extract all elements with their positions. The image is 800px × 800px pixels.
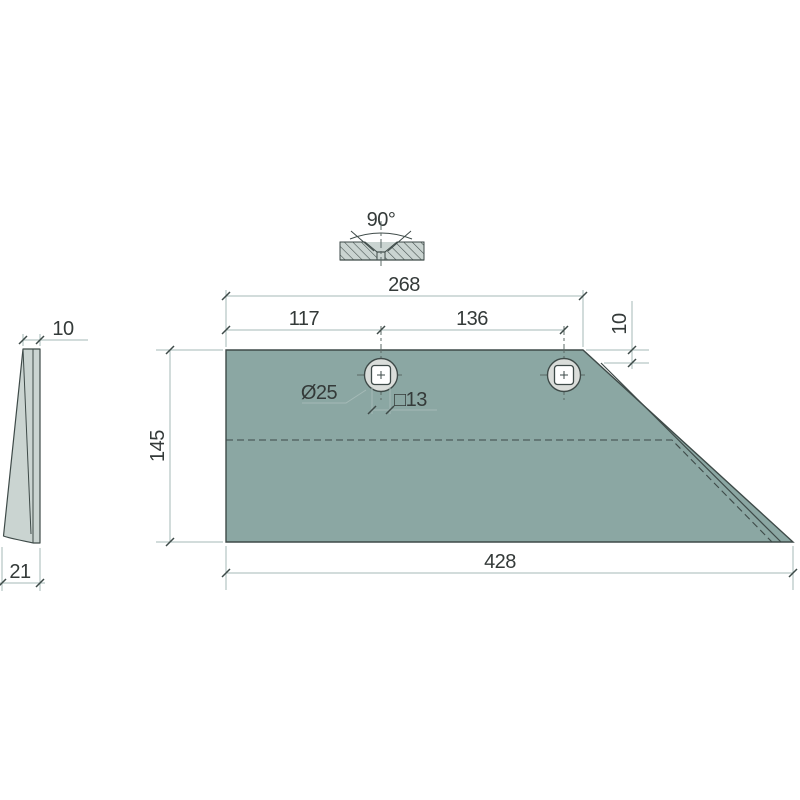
side-view: 10 21 — [0, 318, 88, 591]
hole-diameter-label: Ø25 — [301, 382, 338, 404]
technical-drawing-page: 10 21 90° — [0, 0, 800, 800]
technical-drawing: 10 21 90° — [0, 0, 800, 800]
dim-hole-spacing-label: 136 — [456, 308, 488, 330]
dim-base-length-label: 428 — [484, 551, 516, 573]
dim-bevel-offset: 10 — [586, 301, 649, 369]
dim-hole-positions: 117 136 — [222, 308, 568, 334]
side-view-outline — [4, 349, 41, 543]
countersink-detail: 90° — [340, 209, 424, 268]
dim-side-thickness-top-label: 10 — [52, 318, 74, 340]
dim-overall-top: 268 — [222, 274, 587, 347]
dim-height: 145 — [147, 346, 223, 546]
dim-side-thickness-bottom-label: 21 — [9, 561, 31, 583]
dim-side-thickness-top: 10 — [19, 318, 88, 346]
dim-height-label: 145 — [147, 430, 169, 462]
square-hole-label: □13 — [394, 389, 427, 411]
dim-bevel-offset-label: 10 — [609, 313, 631, 335]
main-view: Ø25 □13 — [226, 326, 793, 542]
blade-outline — [226, 350, 793, 542]
dim-hole1-offset-label: 117 — [289, 308, 320, 330]
dim-base-length: 428 — [222, 546, 797, 590]
dim-overall-top-label: 268 — [388, 274, 420, 296]
dim-side-thickness-bottom: 21 — [0, 547, 45, 591]
